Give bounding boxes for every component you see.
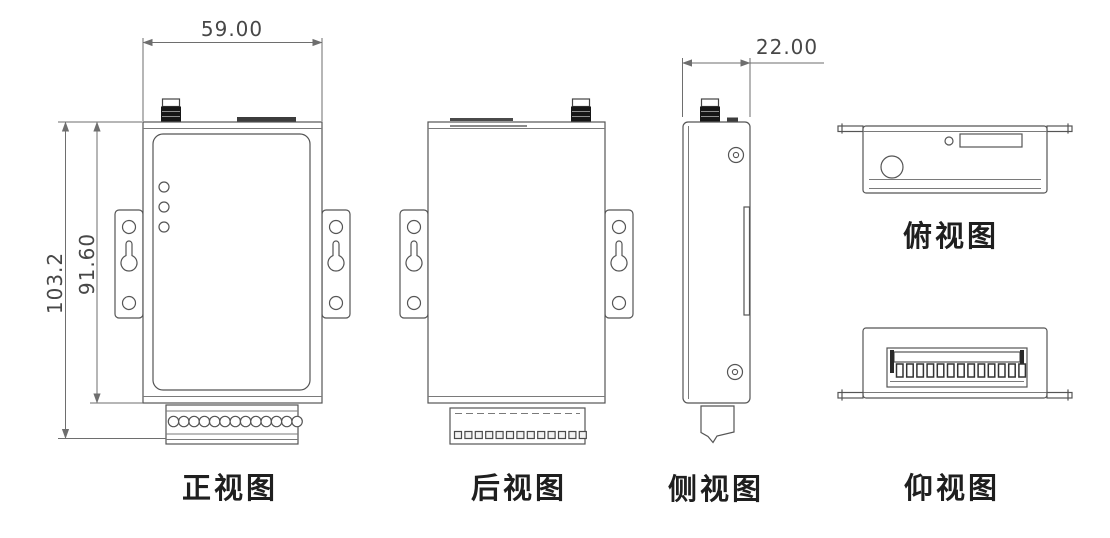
side-rail (744, 207, 750, 315)
terminal-hole (210, 416, 220, 426)
terminal-pin (486, 432, 493, 439)
terminal-slot (897, 364, 904, 377)
terminal-pin (465, 432, 472, 439)
top-view (838, 124, 1072, 193)
dim-depth-text: 22.00 (756, 35, 818, 59)
antenna-connector-icon (700, 99, 720, 122)
front-terminal-block (166, 405, 302, 444)
front-panel (153, 134, 310, 390)
rear-view-label: 后视图 (471, 465, 567, 507)
terminal-hole (251, 416, 261, 426)
terminal-hole (271, 416, 281, 426)
terminal-slot (937, 364, 944, 377)
terminal-hole (199, 416, 209, 426)
mounting-ear-left (400, 210, 428, 318)
terminal-slot (927, 364, 934, 377)
screw-top (729, 148, 744, 163)
terminal-slot (999, 364, 1006, 377)
side-view-label: 侧视图 (668, 466, 764, 508)
bottom-terminal-block (887, 348, 1027, 387)
side-body (683, 122, 750, 403)
terminal-hole (282, 416, 292, 426)
terminal-pin (538, 432, 545, 439)
antenna-connector-icon (571, 99, 591, 122)
terminal-hole (168, 416, 178, 426)
front-view (115, 99, 350, 444)
terminal-slot (1019, 364, 1026, 377)
rear-body (428, 122, 605, 403)
small-hole (945, 137, 953, 145)
rear-view (400, 99, 633, 444)
terminal-hole (261, 416, 271, 426)
screw-bottom (728, 365, 743, 380)
mounting-ear-right (322, 210, 350, 318)
mounting-ear-left (115, 210, 143, 318)
dim-width-text: 59.00 (201, 17, 263, 41)
terminal-hole (220, 416, 230, 426)
terminal-slot (907, 364, 914, 377)
terminal-pin (496, 432, 503, 439)
terminal-slot (917, 364, 924, 377)
terminal-hole (179, 416, 189, 426)
terminal-slot (948, 364, 955, 377)
terminal-hole (230, 416, 240, 426)
terminal-pin (527, 432, 534, 439)
terminal-slot (968, 364, 975, 377)
led-indicators (159, 182, 169, 232)
top-view-label: 俯视图 (903, 213, 999, 255)
terminal-pin (507, 432, 514, 439)
led-icon (159, 222, 169, 232)
terminal-pin (517, 432, 524, 439)
dim-overall-height-text: 103.2 (43, 252, 67, 314)
led-icon (159, 202, 169, 212)
terminal-slot (958, 364, 965, 377)
terminal-hole (240, 416, 250, 426)
terminal-pin (455, 432, 462, 439)
side-view (683, 99, 750, 443)
technical-drawing: 59.00 103.2 91.60 22.00 正视图 后视图 侧视图 俯视图 … (0, 0, 1110, 538)
terminal-pin (559, 432, 566, 439)
mounting-ear-right (605, 210, 633, 318)
terminal-hole (292, 416, 302, 426)
terminal-slot (988, 364, 995, 377)
terminal-pin (475, 432, 482, 439)
bottom-view (838, 328, 1072, 400)
terminal-pin (548, 432, 555, 439)
terminal-pin (579, 432, 586, 439)
drawing-canvas (0, 0, 1110, 538)
rear-terminal-block (450, 408, 586, 444)
dim-body-height-text: 91.60 (75, 233, 99, 295)
bottom-view-label: 仰视图 (904, 465, 1000, 507)
led-icon (159, 182, 169, 192)
terminal-slot (978, 364, 985, 377)
top-slot-opening (960, 134, 1022, 147)
antenna-connector-icon (161, 99, 181, 122)
terminal-slot (1009, 364, 1016, 377)
side-terminal (701, 406, 734, 443)
top-slot (237, 117, 296, 122)
front-view-label: 正视图 (182, 465, 278, 507)
side-top-slot (727, 118, 738, 122)
antenna-hole (881, 156, 903, 178)
terminal-hole (189, 416, 199, 426)
terminal-pin (569, 432, 576, 439)
